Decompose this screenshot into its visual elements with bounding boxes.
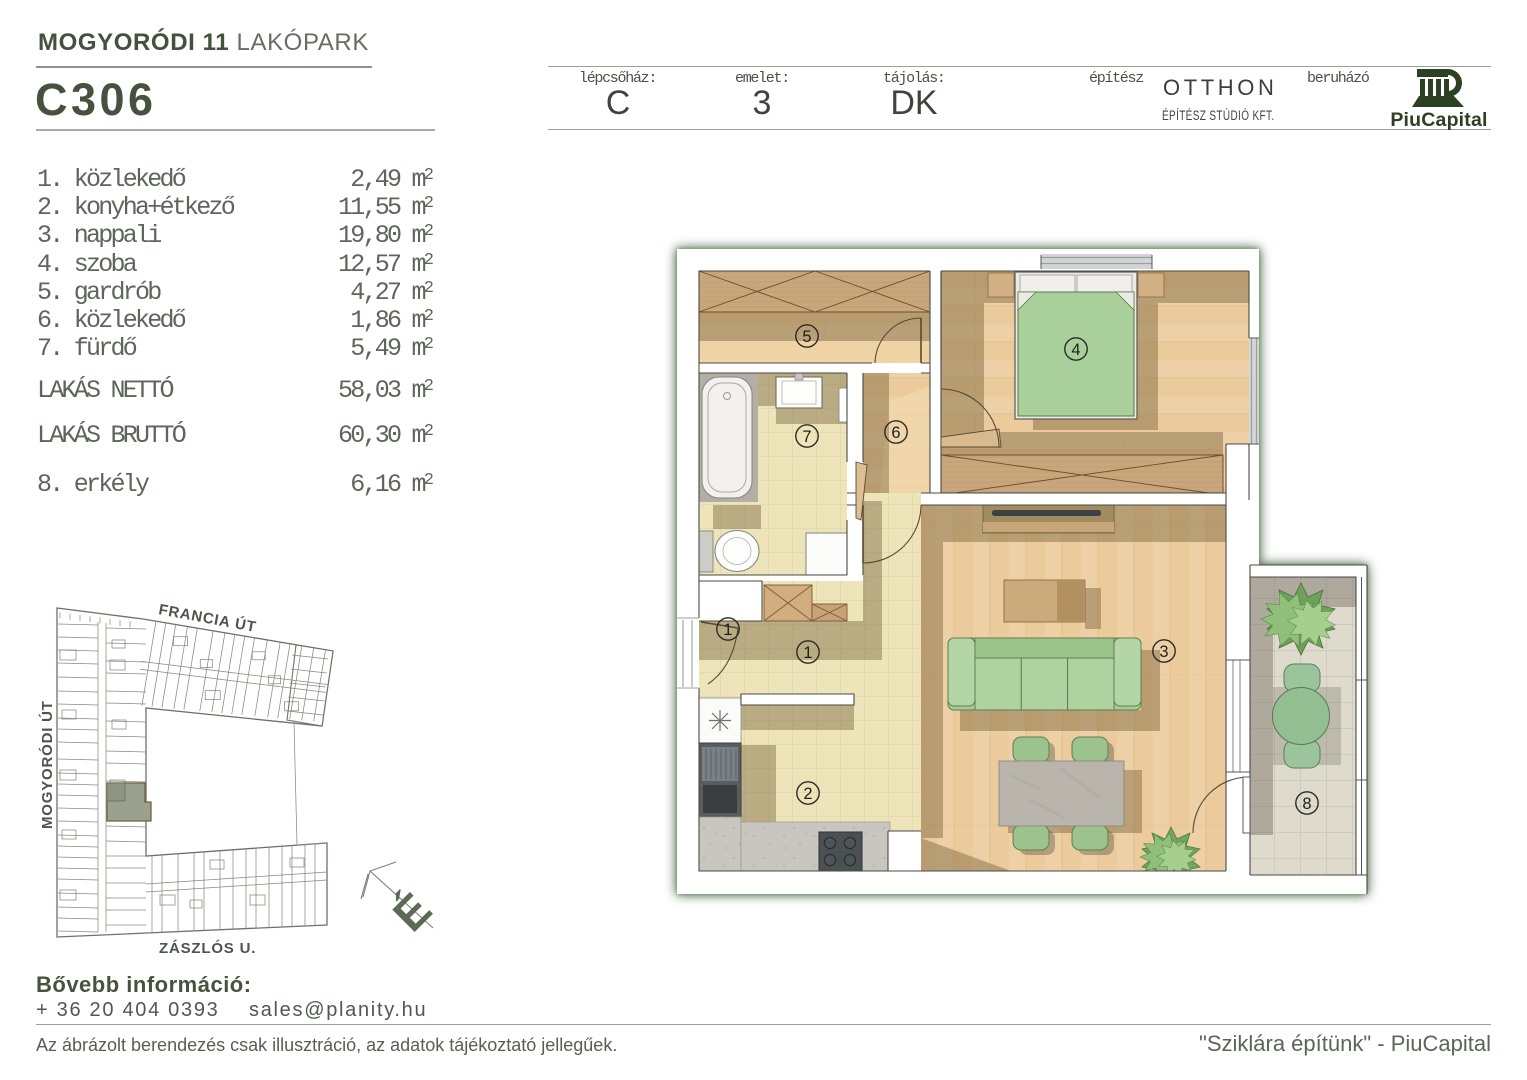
svg-text:3: 3 [1159,643,1168,661]
svg-text:7: 7 [802,428,811,446]
svg-text:PiuCapital: PiuCapital [1390,109,1487,130]
svg-text:MOGYORÓDI ÚT: MOGYORÓDI ÚT [38,700,56,829]
svg-text:5: 5 [802,328,811,346]
svg-text:8: 8 [1302,795,1311,813]
svg-text:1: 1 [723,621,732,639]
svg-text:6: 6 [891,424,900,442]
svg-text:4: 4 [1071,341,1080,359]
svg-text:É: É [383,883,441,941]
svg-text:1: 1 [803,644,812,662]
svg-text:ZÁSZLÓS U.: ZÁSZLÓS U. [159,939,256,957]
svg-text:2: 2 [803,785,812,803]
